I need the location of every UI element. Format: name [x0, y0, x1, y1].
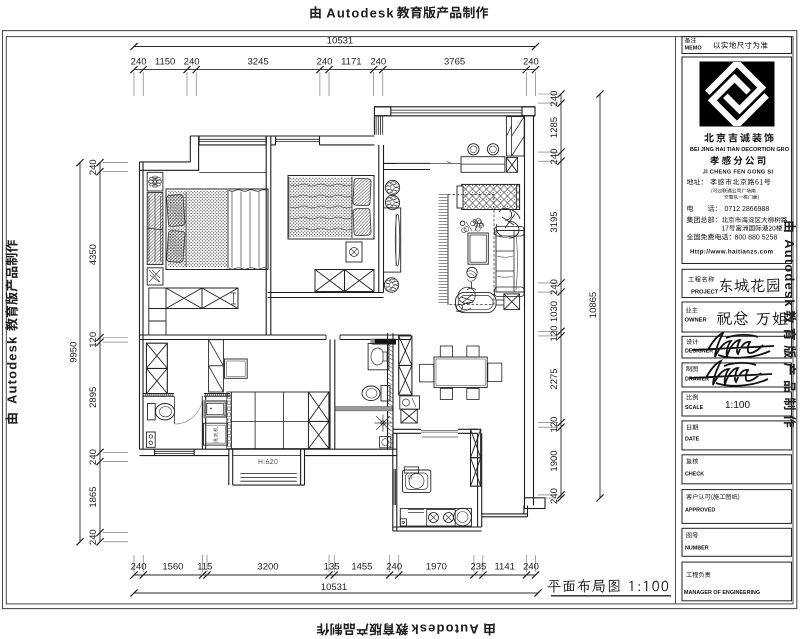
svg-text:240: 240 [88, 529, 99, 545]
svg-text:3200: 3200 [257, 562, 278, 573]
svg-text:1285: 1285 [549, 117, 560, 138]
svg-text:1455: 1455 [351, 562, 372, 573]
svg-text:3245: 3245 [248, 57, 269, 68]
svg-text:240: 240 [370, 57, 386, 68]
svg-text:1141: 1141 [494, 562, 514, 573]
svg-text:3195: 3195 [549, 211, 560, 232]
svg-text:4350: 4350 [88, 244, 99, 265]
svg-text:240: 240 [549, 149, 560, 165]
svg-text:1865: 1865 [88, 487, 99, 508]
svg-text:BEI JING HAI TIAN DECORTION GR: BEI JING HAI TIAN DECORTION GRO [690, 147, 790, 153]
svg-text:115: 115 [197, 562, 212, 573]
svg-text:Autodesk: Autodesk [5, 336, 20, 404]
svg-text:2275: 2275 [549, 368, 560, 389]
svg-text:2895: 2895 [88, 387, 99, 408]
svg-text:240: 240 [549, 91, 560, 107]
svg-text:10531: 10531 [321, 582, 347, 593]
svg-text:1900: 1900 [549, 450, 560, 471]
svg-text:PROJECT: PROJECT [691, 290, 719, 296]
svg-text:240: 240 [386, 562, 402, 573]
svg-text:240: 240 [523, 57, 539, 68]
svg-text:MANAGER OF ENGINEERING: MANAGER OF ENGINEERING [684, 590, 760, 596]
svg-text:MEMO: MEMO [685, 46, 703, 52]
svg-text:240: 240 [523, 562, 539, 573]
svg-text:3765: 3765 [444, 57, 465, 68]
svg-text:1030: 1030 [549, 301, 560, 322]
svg-text:DATE: DATE [685, 437, 700, 443]
svg-text:240: 240 [549, 488, 560, 504]
svg-text:10865: 10865 [588, 292, 599, 318]
svg-text:1970: 1970 [426, 562, 447, 573]
svg-text:Autodesk: Autodesk [410, 622, 478, 637]
svg-text:240: 240 [88, 449, 99, 465]
svg-text:SCALE: SCALE [685, 405, 704, 411]
svg-text:Autodesk: Autodesk [326, 5, 394, 20]
svg-text:240: 240 [184, 57, 200, 68]
svg-text:120: 120 [88, 332, 99, 348]
svg-text:10531: 10531 [327, 36, 353, 47]
svg-text:240: 240 [549, 279, 560, 295]
svg-text:240: 240 [131, 562, 147, 573]
svg-text:1560: 1560 [162, 562, 183, 573]
svg-text:0712 2866988: 0712 2866988 [725, 206, 770, 213]
svg-text:240: 240 [88, 159, 99, 175]
svg-text:1171: 1171 [341, 57, 361, 68]
svg-text:CHECK: CHECK [685, 472, 704, 478]
svg-text:1150: 1150 [155, 57, 175, 68]
svg-text:JI CHENG FEN GONG SI: JI CHENG FEN GONG SI [703, 170, 774, 176]
svg-text:NUMBER: NUMBER [685, 546, 709, 552]
svg-text:235: 235 [470, 562, 486, 573]
svg-text:240: 240 [317, 57, 333, 68]
svg-text:1:100: 1:100 [725, 400, 750, 411]
svg-text:800 880 5258: 800 880 5258 [735, 235, 778, 242]
svg-text:120: 120 [549, 326, 560, 342]
svg-text:120: 120 [549, 417, 560, 433]
svg-text:240: 240 [131, 57, 147, 68]
svg-text:9950: 9950 [69, 342, 80, 363]
svg-text:APPROVED: APPROVED [685, 508, 715, 514]
svg-text:135: 135 [324, 562, 340, 573]
svg-text:OWNER: OWNER [685, 318, 708, 324]
